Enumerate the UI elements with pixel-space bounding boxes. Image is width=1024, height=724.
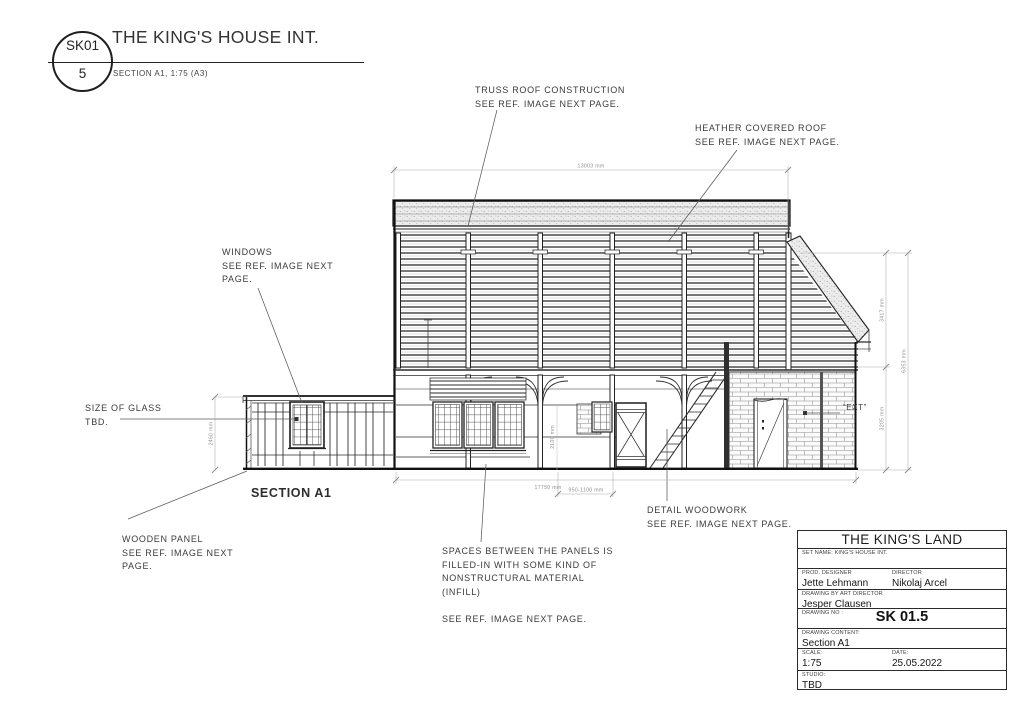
dim-right-total: 6353 mm	[902, 349, 908, 373]
hall-windows	[430, 378, 526, 454]
annotation-detail-woodwork: DETAIL WOODWORK SEE REF. IMAGE NEXT PAGE…	[647, 504, 792, 531]
dim-mid-height: 2100 mm	[550, 425, 556, 449]
title-block: THE KING'S LAND SET NAME: KING'S HOUSE I…	[797, 530, 1007, 690]
director-label: DIRECTOR	[892, 570, 1002, 576]
prod-designer-label: PROD. DESIGNER	[802, 570, 892, 576]
director-value: Nikolaj Arcel	[892, 578, 1002, 589]
studio-label: STUDIO:	[802, 672, 1002, 678]
section-title: SECTION A1	[251, 486, 332, 500]
leader-wooden-panel	[128, 471, 247, 519]
art-director-value: Jesper Clausen	[802, 599, 1002, 609]
title-block-art-director: DRAWING BY ART DIRECTOR Jesper Clausen	[798, 589, 1006, 608]
corner-post	[724, 342, 729, 468]
dim-right-lower: 3205 mm	[880, 407, 886, 431]
dim-bottom-width: 17750 mm	[535, 485, 562, 491]
title-block-project: THE KING'S LAND	[798, 531, 1006, 548]
content-value: Section A1	[802, 638, 1002, 649]
leader-windows	[258, 288, 302, 403]
leader-dot-ext	[803, 411, 807, 415]
scale-value: 1:75	[802, 658, 892, 669]
annotation-heather-roof: HEATHER COVERED ROOF SEE REF. IMAGE NEXT…	[695, 122, 840, 149]
drawing-no-label: DRAWING NO :	[802, 610, 843, 616]
annotation-infill: SPACES BETWEEN THE PANELS IS FILLED-IN W…	[442, 545, 613, 626]
dim-left-height: 2460 mm	[209, 422, 215, 446]
scale-label: SCALE:	[802, 650, 892, 656]
dim-door-width: 950-1100 mm	[569, 488, 604, 494]
annotation-wooden-panel: WOODEN PANEL SEE REF. IMAGE NEXT PAGE.	[122, 533, 233, 574]
ext-door	[754, 399, 787, 468]
leader-dot-glass	[295, 417, 299, 421]
set-name-label: SET NAME: KING'S HOUSE INT.	[802, 550, 1002, 556]
title-block-content: DRAWING CONTENT: Section A1	[798, 628, 1006, 648]
annotation-windows: WINDOWS SEE REF. IMAGE NEXT PAGE.	[222, 246, 333, 287]
studio-value: TBD	[802, 680, 1002, 690]
title-block-studio: STUDIO: TBD	[798, 670, 1006, 689]
leader-heather-roof	[668, 150, 737, 242]
annotation-size-of-glass: SIZE OF GLASS TBD.	[85, 402, 162, 429]
leader-infill	[481, 464, 486, 542]
title-block-drawing-no: DRAWING NO : SK 01.5	[798, 608, 1006, 628]
annotation-ext: “EXT”	[843, 402, 867, 414]
dim-top-width: 13003 mm	[578, 164, 605, 170]
drawing-sheet: SK01 5 THE KING'S HOUSE INT. SECTION A1,…	[0, 0, 1024, 724]
title-block-designer-director: PROD. DESIGNER Jette Lehmann DIRECTOR Ni…	[798, 568, 1006, 589]
art-director-label: DRAWING BY ART DIRECTOR	[802, 591, 1002, 597]
title-block-set-name: SET NAME: KING'S HOUSE INT.	[798, 548, 1006, 568]
dim-right-upper: 3417 mm	[880, 298, 886, 322]
heather-roof-band	[393, 200, 790, 232]
prod-designer-value: Jette Lehmann	[802, 578, 892, 589]
shutter-slats	[430, 378, 526, 400]
hall-door	[616, 403, 646, 467]
content-label: DRAWING CONTENT:	[802, 630, 1002, 636]
date-label: DATE:	[892, 650, 1002, 656]
title-block-scale-date: SCALE: 1:75 DATE: 25.05.2022	[798, 648, 1006, 670]
annotation-truss-roof: TRUSS ROOF CONSTRUCTION SEE REF. IMAGE N…	[475, 84, 625, 111]
infill-brick-window	[577, 402, 612, 434]
left-wing	[243, 396, 395, 468]
date-value: 25.05.2022	[892, 658, 1002, 669]
